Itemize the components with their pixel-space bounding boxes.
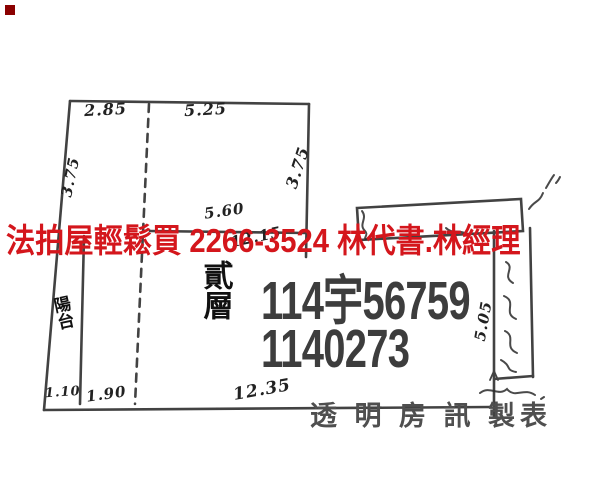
corner-mark (5, 5, 15, 15)
annex-bottom-wall (494, 376, 533, 379)
case-number-line2: 1140273 (261, 322, 409, 376)
publisher-footer: 透 明 房 訊 製表 (310, 394, 552, 433)
scribble-shaft-3 (505, 331, 517, 353)
measurement-top-left: 2.85 (84, 99, 128, 120)
annex-right-wall (530, 228, 533, 377)
scribble-diagonal-top-right (529, 175, 560, 209)
scribble-shaft-2 (504, 296, 516, 319)
scribble-shaft-4 (501, 360, 516, 372)
scribble-shaft-1 (506, 262, 513, 283)
measurement-top-right: 5.25 (184, 99, 228, 120)
measurement-bottom-balcony: 1.10 (45, 384, 82, 401)
ad-overlay-text: 法拍屋輕鬆買 2266-3524 林代書.林經理 (6, 214, 520, 262)
floor-label: 貳層 (197, 260, 232, 320)
